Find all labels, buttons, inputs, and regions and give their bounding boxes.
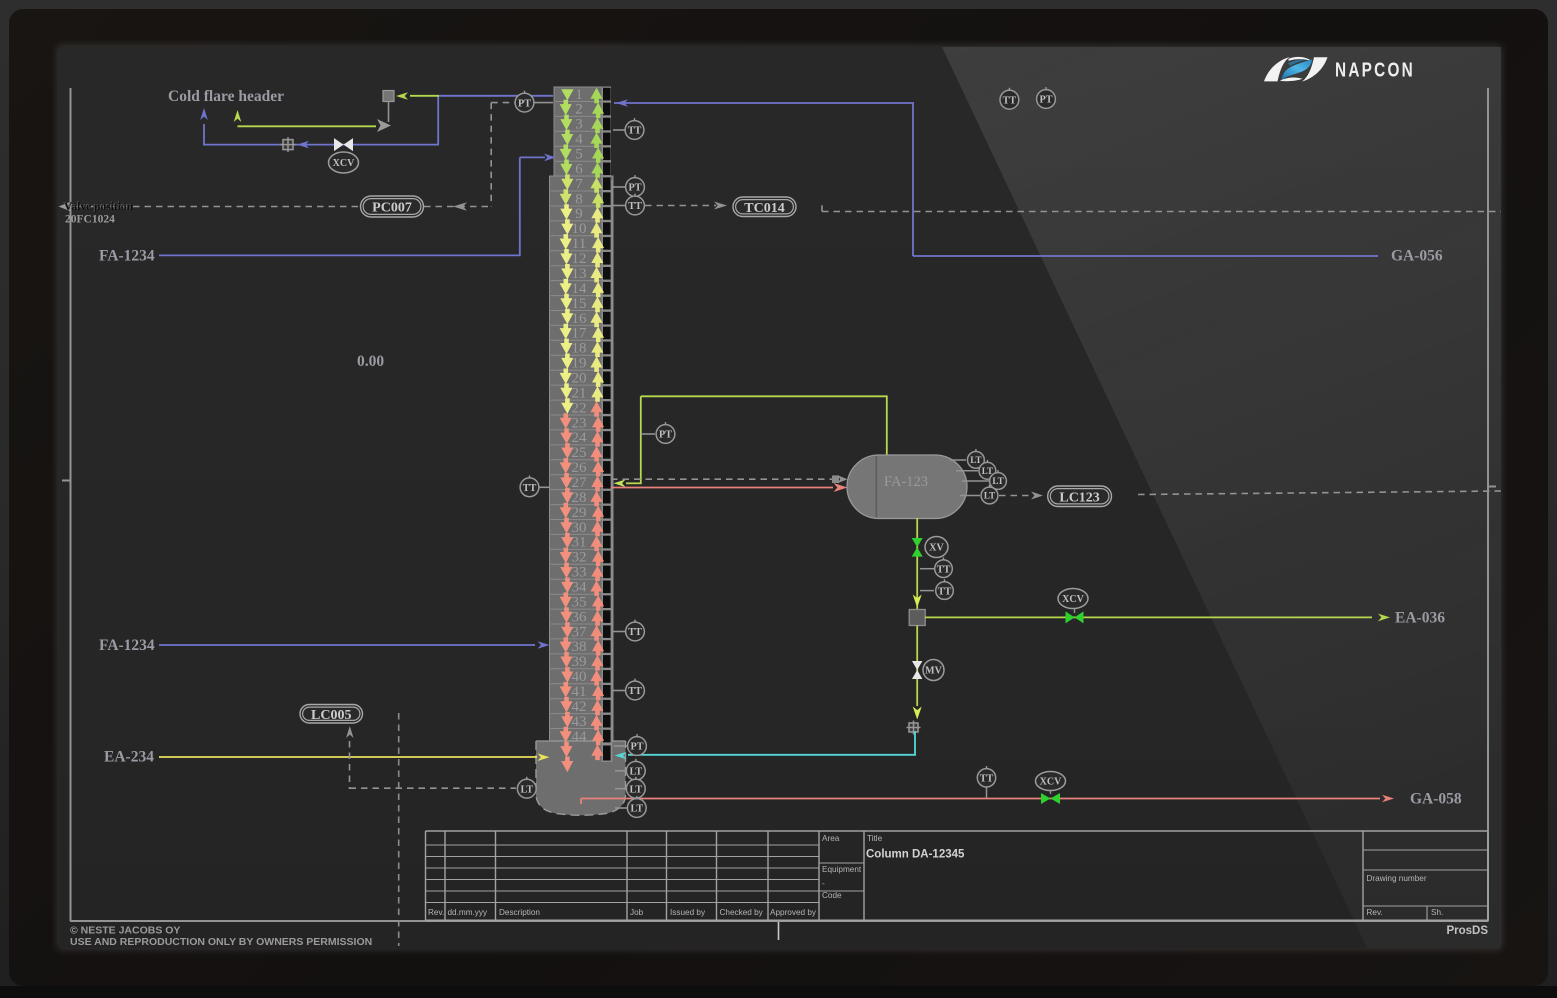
svg-text:Rev.: Rev.: [1367, 908, 1383, 917]
svg-text:PT: PT: [659, 430, 672, 441]
svg-text:dd.mm.yyy: dd.mm.yyy: [448, 908, 488, 917]
svg-text:12: 12: [572, 251, 587, 267]
svg-text:LC123: LC123: [1059, 490, 1099, 505]
svg-text:TT: TT: [628, 201, 642, 212]
svg-text:LT: LT: [984, 491, 995, 501]
svg-text:Column DA-12345: Column DA-12345: [866, 849, 965, 861]
svg-text:18: 18: [572, 341, 587, 357]
svg-text:19: 19: [572, 356, 587, 372]
svg-text:LT: LT: [982, 466, 993, 476]
svg-text:4: 4: [575, 132, 583, 148]
svg-text:NAPCON: NAPCON: [1335, 59, 1415, 82]
svg-text:XCV: XCV: [1062, 594, 1084, 605]
svg-text:TT: TT: [628, 627, 642, 638]
svg-text:LT: LT: [520, 784, 533, 795]
svg-text:22: 22: [572, 400, 587, 416]
svg-text:XCV: XCV: [1040, 777, 1062, 788]
svg-text:TT: TT: [628, 126, 642, 137]
svg-text:31: 31: [572, 535, 587, 551]
svg-text:TT: TT: [980, 774, 994, 785]
svg-text:XV: XV: [929, 543, 944, 554]
svg-text:37: 37: [572, 624, 588, 640]
svg-text:23: 23: [572, 415, 587, 431]
svg-text:28: 28: [572, 490, 587, 506]
svg-text:TT: TT: [937, 564, 951, 575]
svg-text:36: 36: [572, 609, 588, 625]
svg-text:30: 30: [572, 520, 587, 536]
svg-text:Approved by: Approved by: [770, 908, 817, 917]
svg-text:Checked by: Checked by: [720, 908, 764, 917]
svg-text:Issued by: Issued by: [670, 908, 706, 917]
svg-text:FA-1234: FA-1234: [99, 248, 155, 265]
svg-text:Valve position: Valve position: [64, 201, 134, 213]
svg-text:Equipment: Equipment: [822, 865, 862, 874]
svg-text:© NESTE JACOBS OY: © NESTE JACOBS OY: [70, 925, 180, 937]
svg-text:16: 16: [572, 311, 588, 327]
svg-text:Cold flare header: Cold flare header: [168, 88, 284, 105]
svg-text:Drawing number: Drawing number: [1367, 874, 1427, 883]
svg-text:FA-1234: FA-1234: [99, 637, 155, 654]
svg-text:-: -: [822, 879, 825, 888]
svg-text:42: 42: [572, 699, 587, 715]
svg-text:2: 2: [575, 102, 583, 118]
svg-text:41: 41: [572, 684, 587, 700]
svg-text:ProsDS: ProsDS: [1446, 925, 1488, 937]
svg-text:PT: PT: [518, 98, 531, 109]
svg-text:FA-123: FA-123: [884, 474, 928, 490]
svg-text:33: 33: [572, 565, 587, 581]
svg-text:LT: LT: [992, 476, 1003, 486]
svg-text:14: 14: [572, 281, 588, 297]
svg-text:39: 39: [572, 654, 587, 670]
svg-text:29: 29: [572, 505, 587, 521]
svg-text:Area: Area: [822, 834, 840, 843]
svg-text:LT: LT: [629, 767, 642, 778]
svg-text:10: 10: [572, 221, 587, 237]
svg-text:9: 9: [575, 206, 583, 222]
svg-text:35: 35: [572, 594, 587, 610]
svg-text:LT: LT: [970, 455, 981, 465]
svg-text:LC005: LC005: [311, 708, 351, 723]
svg-text:GA-058: GA-058: [1410, 791, 1462, 808]
svg-text:8: 8: [575, 191, 583, 207]
svg-text:20FC1024: 20FC1024: [65, 214, 115, 226]
svg-text:USE AND REPRODUCTION ONLY BY O: USE AND REPRODUCTION ONLY BY OWNERS PERM…: [70, 936, 372, 948]
svg-text:32: 32: [572, 550, 587, 566]
svg-text:5: 5: [575, 147, 583, 163]
svg-text:15: 15: [572, 296, 587, 312]
svg-text:7: 7: [575, 176, 583, 192]
svg-text:TT: TT: [938, 586, 952, 597]
svg-text:PT: PT: [630, 742, 643, 753]
svg-text:26: 26: [572, 460, 588, 476]
svg-text:Description: Description: [499, 908, 540, 917]
svg-text:Rev.: Rev.: [428, 908, 444, 917]
svg-text:24: 24: [572, 430, 588, 446]
svg-text:Code: Code: [822, 891, 842, 900]
svg-text:Sh.: Sh.: [1431, 908, 1443, 917]
svg-text:40: 40: [572, 669, 587, 685]
svg-text:0.00: 0.00: [357, 353, 384, 370]
svg-text:GA-056: GA-056: [1391, 248, 1443, 265]
svg-text:21: 21: [572, 385, 587, 401]
svg-text:EA-234: EA-234: [104, 749, 154, 766]
svg-text:6: 6: [575, 162, 583, 178]
svg-text:43: 43: [572, 714, 587, 730]
svg-text:20: 20: [572, 371, 587, 387]
svg-text:25: 25: [572, 445, 587, 461]
svg-text:38: 38: [572, 639, 587, 655]
svg-text:44: 44: [572, 729, 588, 745]
svg-text:13: 13: [572, 266, 587, 282]
svg-text:27: 27: [572, 475, 588, 491]
svg-text:11: 11: [572, 236, 586, 252]
svg-text:PT: PT: [1039, 95, 1052, 106]
svg-text:EA-036: EA-036: [1395, 610, 1445, 627]
svg-text:Job: Job: [630, 908, 644, 917]
svg-text:3: 3: [575, 117, 583, 133]
svg-text:MV: MV: [925, 666, 942, 677]
svg-text:LT: LT: [630, 804, 643, 815]
svg-text:TT: TT: [628, 686, 642, 697]
svg-text:TC014: TC014: [744, 201, 784, 216]
svg-text:PT: PT: [628, 183, 641, 194]
svg-text:TT: TT: [1003, 95, 1017, 106]
svg-text:34: 34: [572, 580, 588, 596]
svg-text:LT: LT: [629, 784, 642, 795]
svg-text:Title: Title: [867, 834, 883, 843]
svg-text:TT: TT: [523, 483, 537, 494]
svg-text:1: 1: [575, 87, 583, 103]
svg-text:XCV: XCV: [333, 158, 355, 169]
svg-text:17: 17: [572, 326, 588, 342]
svg-text:PC007: PC007: [372, 201, 412, 216]
